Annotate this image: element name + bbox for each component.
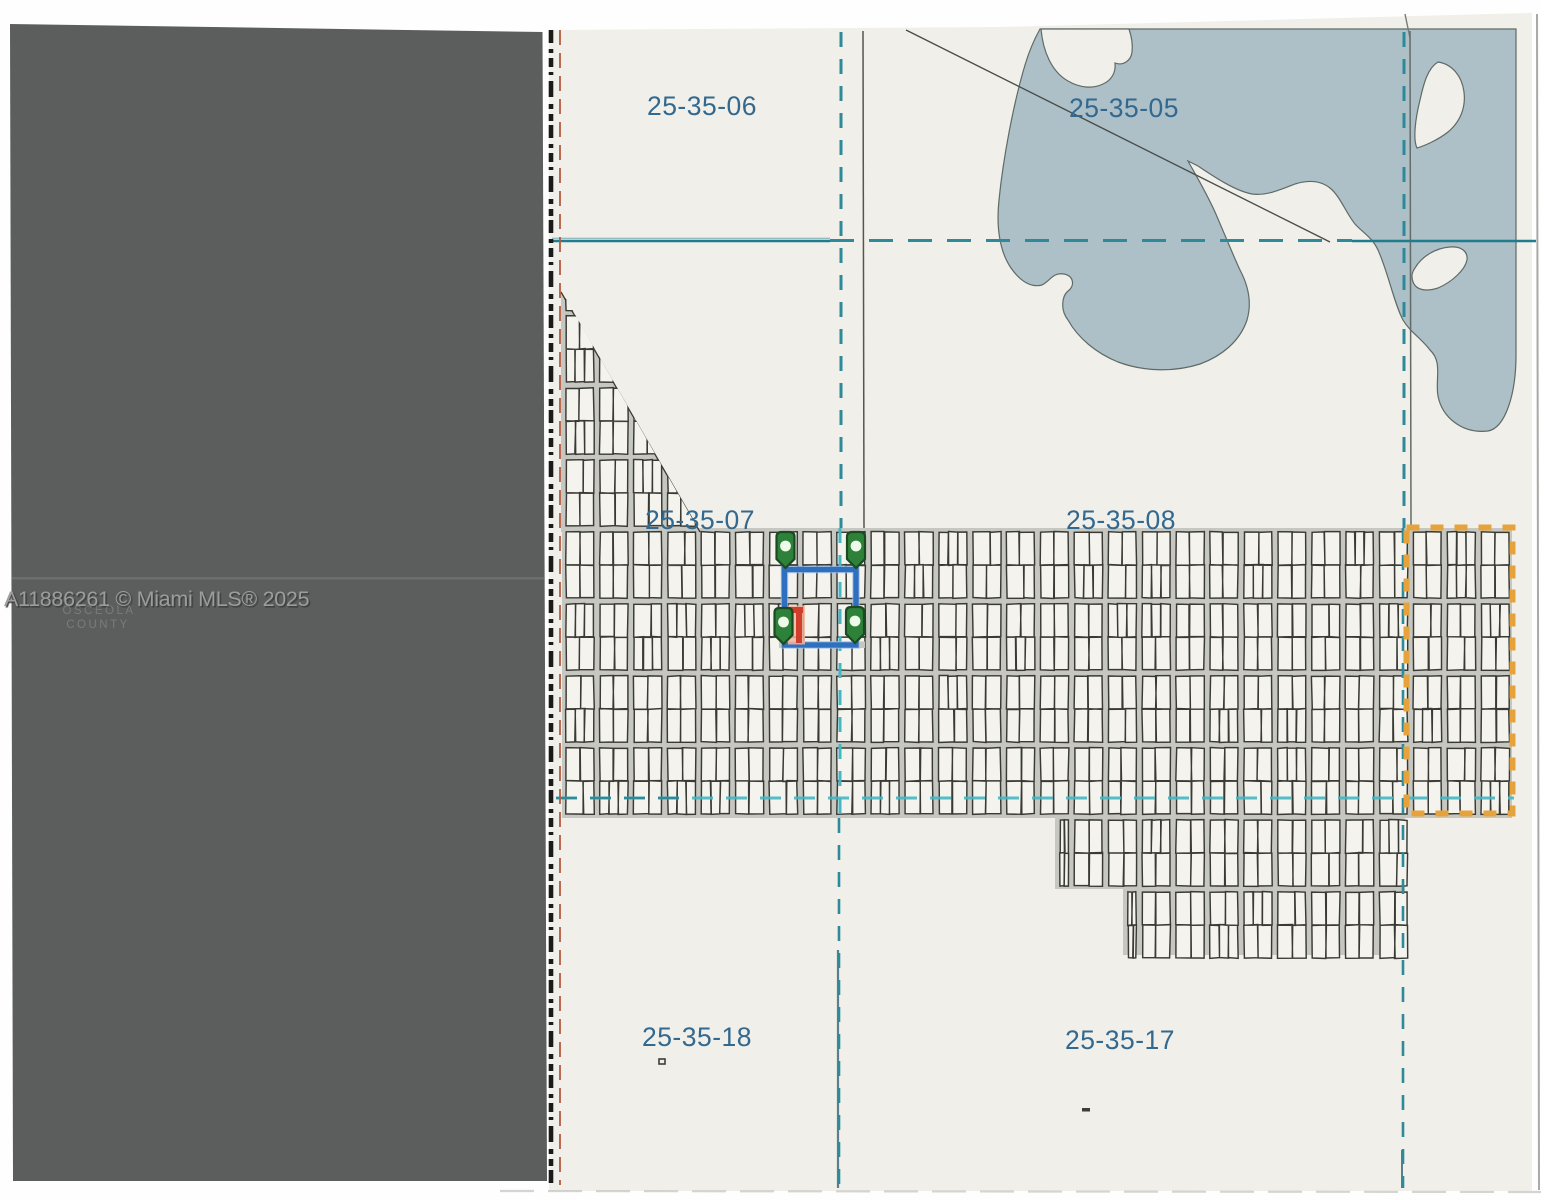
svg-text:25-35-05: 25-35-05	[1069, 93, 1179, 123]
svg-text:OSCEOLA: OSCEOLA	[62, 605, 135, 617]
svg-text:A11886261 © Miami MLS® 2025: A11886261 © Miami MLS® 2025	[4, 587, 310, 611]
svg-text:25-35-07: 25-35-07	[645, 505, 755, 535]
svg-text:COUNTY: COUNTY	[66, 619, 130, 631]
svg-text:25-35-17: 25-35-17	[1065, 1025, 1175, 1055]
svg-text:25-35-18: 25-35-18	[642, 1022, 752, 1052]
svg-text:25-35-08: 25-35-08	[1066, 505, 1176, 535]
svg-text:25-35-06: 25-35-06	[647, 91, 757, 121]
